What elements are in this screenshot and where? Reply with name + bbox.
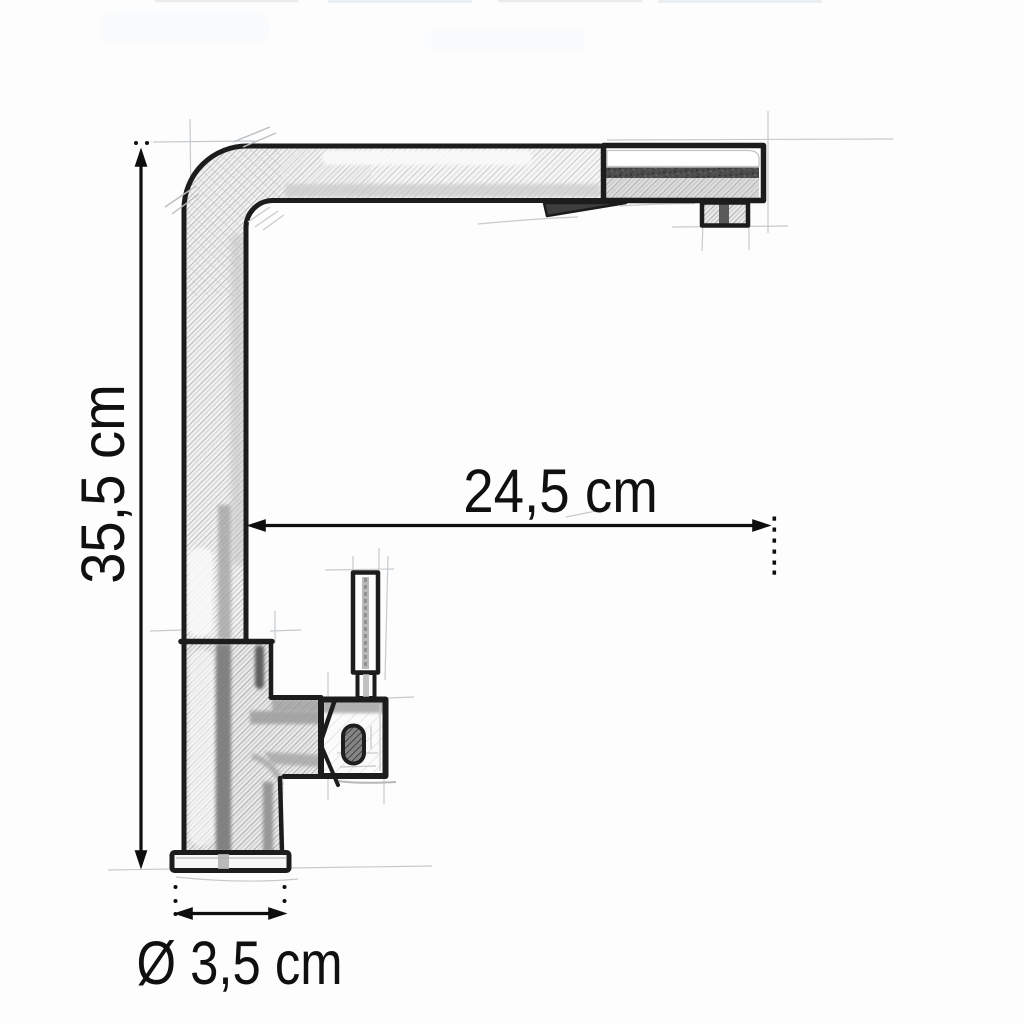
- svg-text:24,5 cm: 24,5 cm: [463, 458, 658, 525]
- svg-text:35,5 cm: 35,5 cm: [70, 384, 138, 584]
- svg-text:Ø 3,5 cm: Ø 3,5 cm: [136, 929, 342, 997]
